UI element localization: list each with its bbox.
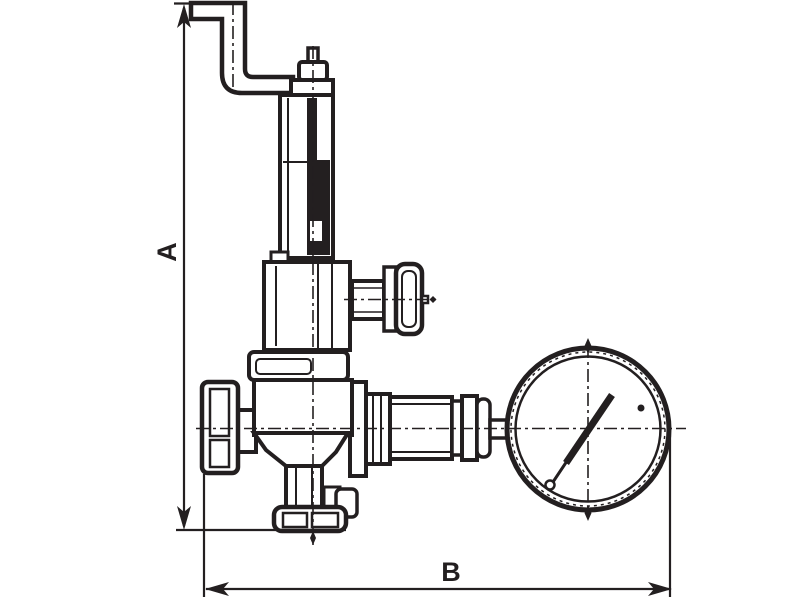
outlet-cap [274,507,346,531]
valve-technical-drawing: A B [0,0,800,598]
discharge-pipe [191,3,293,93]
dim-a-label: A [152,242,182,262]
needle-tail-ring [546,481,555,490]
valve-technical-drawing-page: A B [0,0,800,598]
spring-housing [280,95,333,258]
adjusting-screw [291,48,333,95]
bonnet-chamber [264,252,350,350]
dial-dot [638,405,645,412]
valve-body [234,352,366,517]
dim-b-label: B [441,557,461,587]
inlet-cap [202,382,238,473]
